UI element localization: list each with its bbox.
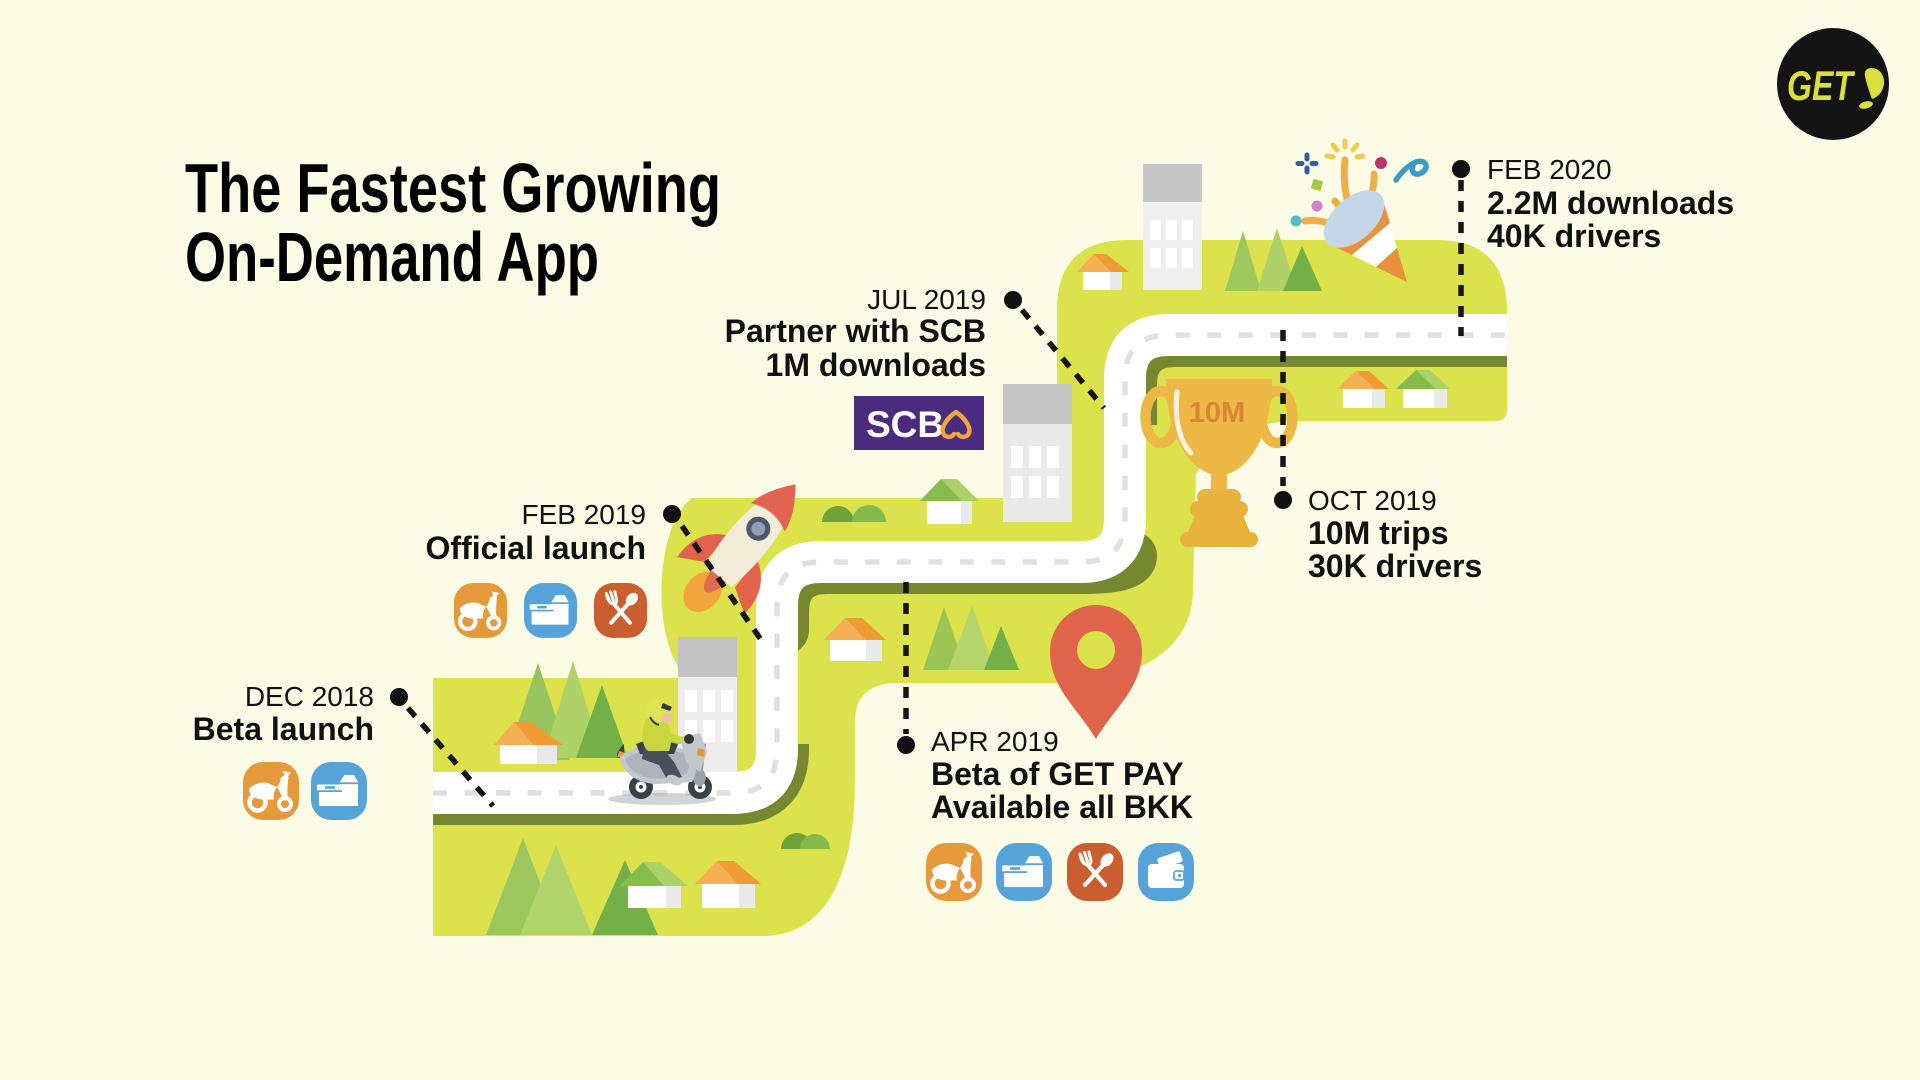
svg-text:Beta of GET PAY: Beta of GET PAY bbox=[931, 756, 1184, 792]
svg-text:The Fastest Growing: The Fastest Growing bbox=[185, 149, 721, 227]
svg-text:Partner with SCB: Partner with SCB bbox=[725, 313, 986, 349]
svg-text:On-Demand App: On-Demand App bbox=[185, 218, 599, 296]
svg-text:Official launch: Official launch bbox=[426, 530, 646, 566]
svg-text:40K drivers: 40K drivers bbox=[1487, 218, 1661, 254]
svg-text:SCB: SCB bbox=[866, 404, 944, 445]
svg-text:GET: GET bbox=[1787, 62, 1856, 109]
svg-text:30K drivers: 30K drivers bbox=[1308, 548, 1482, 584]
svg-text:Available all BKK: Available all BKK bbox=[931, 789, 1193, 825]
svg-text:2.2M downloads: 2.2M downloads bbox=[1487, 185, 1734, 221]
svg-text:10M: 10M bbox=[1189, 397, 1245, 429]
svg-text:10M trips: 10M trips bbox=[1308, 515, 1448, 551]
svg-text:APR 2019: APR 2019 bbox=[931, 726, 1059, 757]
svg-text:DEC 2018: DEC 2018 bbox=[245, 681, 374, 712]
svg-text:1M downloads: 1M downloads bbox=[766, 347, 986, 383]
svg-text:FEB 2020: FEB 2020 bbox=[1487, 154, 1612, 185]
svg-text:OCT 2019: OCT 2019 bbox=[1308, 485, 1437, 516]
svg-text:Beta launch: Beta launch bbox=[193, 711, 374, 747]
svg-text:JUL 2019: JUL 2019 bbox=[867, 284, 986, 315]
svg-text:FEB 2019: FEB 2019 bbox=[521, 499, 646, 530]
